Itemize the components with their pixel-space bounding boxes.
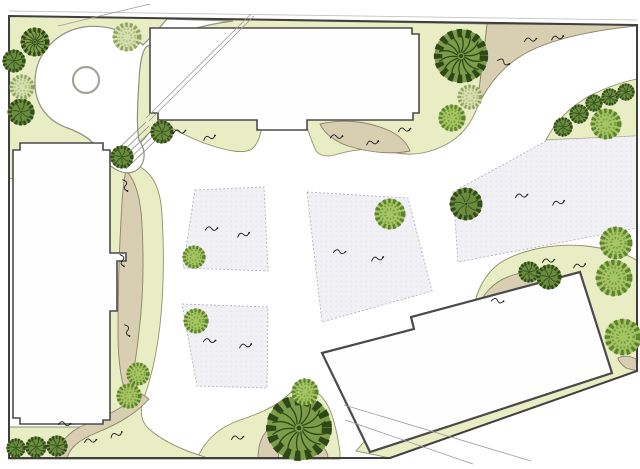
tree-part bbox=[56, 445, 58, 447]
tree-dark bbox=[151, 121, 174, 144]
shrub-dot bbox=[527, 194, 529, 196]
tree-part bbox=[13, 60, 15, 62]
shrub-dot bbox=[185, 130, 187, 132]
tree-dark bbox=[26, 437, 47, 458]
shrub-dot bbox=[96, 439, 98, 441]
tree-bright bbox=[591, 109, 621, 139]
tree-bright bbox=[117, 384, 142, 409]
fountain-ring bbox=[73, 67, 99, 93]
tree-part bbox=[297, 426, 302, 431]
tree-part bbox=[609, 96, 611, 98]
tree-stipple bbox=[458, 85, 483, 110]
tree-dark bbox=[570, 105, 589, 124]
tree-darkradial bbox=[434, 29, 487, 82]
tree-dark bbox=[554, 118, 573, 137]
tree-part bbox=[161, 131, 163, 133]
tree-bright bbox=[605, 319, 640, 355]
landscape-site-plan bbox=[0, 0, 640, 469]
tree-darkradial bbox=[267, 396, 332, 461]
tree-dark bbox=[47, 436, 68, 457]
tree-part bbox=[625, 91, 627, 93]
tree-darkradial bbox=[21, 28, 50, 57]
tree-stipple bbox=[113, 23, 142, 52]
tree-part bbox=[20, 111, 22, 113]
tree-part bbox=[593, 102, 595, 104]
tree-part bbox=[528, 271, 530, 273]
tree-part bbox=[34, 41, 36, 43]
tree-bright bbox=[127, 363, 150, 386]
tree-part bbox=[459, 54, 463, 58]
tree-dark bbox=[585, 94, 602, 111]
tree-bright bbox=[184, 309, 209, 334]
tree-dark bbox=[519, 262, 540, 283]
shrub-dot bbox=[536, 38, 538, 40]
tree-part bbox=[548, 276, 550, 278]
tree-part bbox=[121, 156, 123, 158]
tree-bright bbox=[439, 105, 466, 132]
tree-stipple bbox=[10, 75, 35, 100]
tree-part bbox=[15, 447, 17, 449]
site-plan-drawing bbox=[0, 0, 640, 469]
tree-dark bbox=[537, 265, 562, 290]
shrub-dot bbox=[410, 128, 412, 130]
tree-bright bbox=[183, 246, 206, 269]
tree-dark bbox=[601, 88, 618, 105]
tree-part bbox=[465, 203, 467, 205]
tree-part bbox=[578, 113, 580, 115]
building-left bbox=[13, 143, 126, 424]
tree-part bbox=[35, 446, 37, 448]
tree-bright bbox=[375, 199, 405, 229]
tree-part bbox=[562, 126, 564, 128]
tree-dark bbox=[617, 83, 634, 100]
tree-dark bbox=[111, 146, 134, 169]
tree-dark bbox=[450, 188, 482, 220]
tree-bright bbox=[600, 227, 632, 259]
tree-bright bbox=[596, 260, 632, 296]
shrub-dot bbox=[554, 259, 556, 261]
shrub-dot bbox=[243, 436, 245, 438]
tree-dark bbox=[3, 50, 26, 73]
tree-bright bbox=[292, 379, 319, 406]
tree-dark bbox=[8, 99, 35, 126]
building-top bbox=[150, 28, 419, 130]
tree-dark bbox=[7, 439, 26, 458]
